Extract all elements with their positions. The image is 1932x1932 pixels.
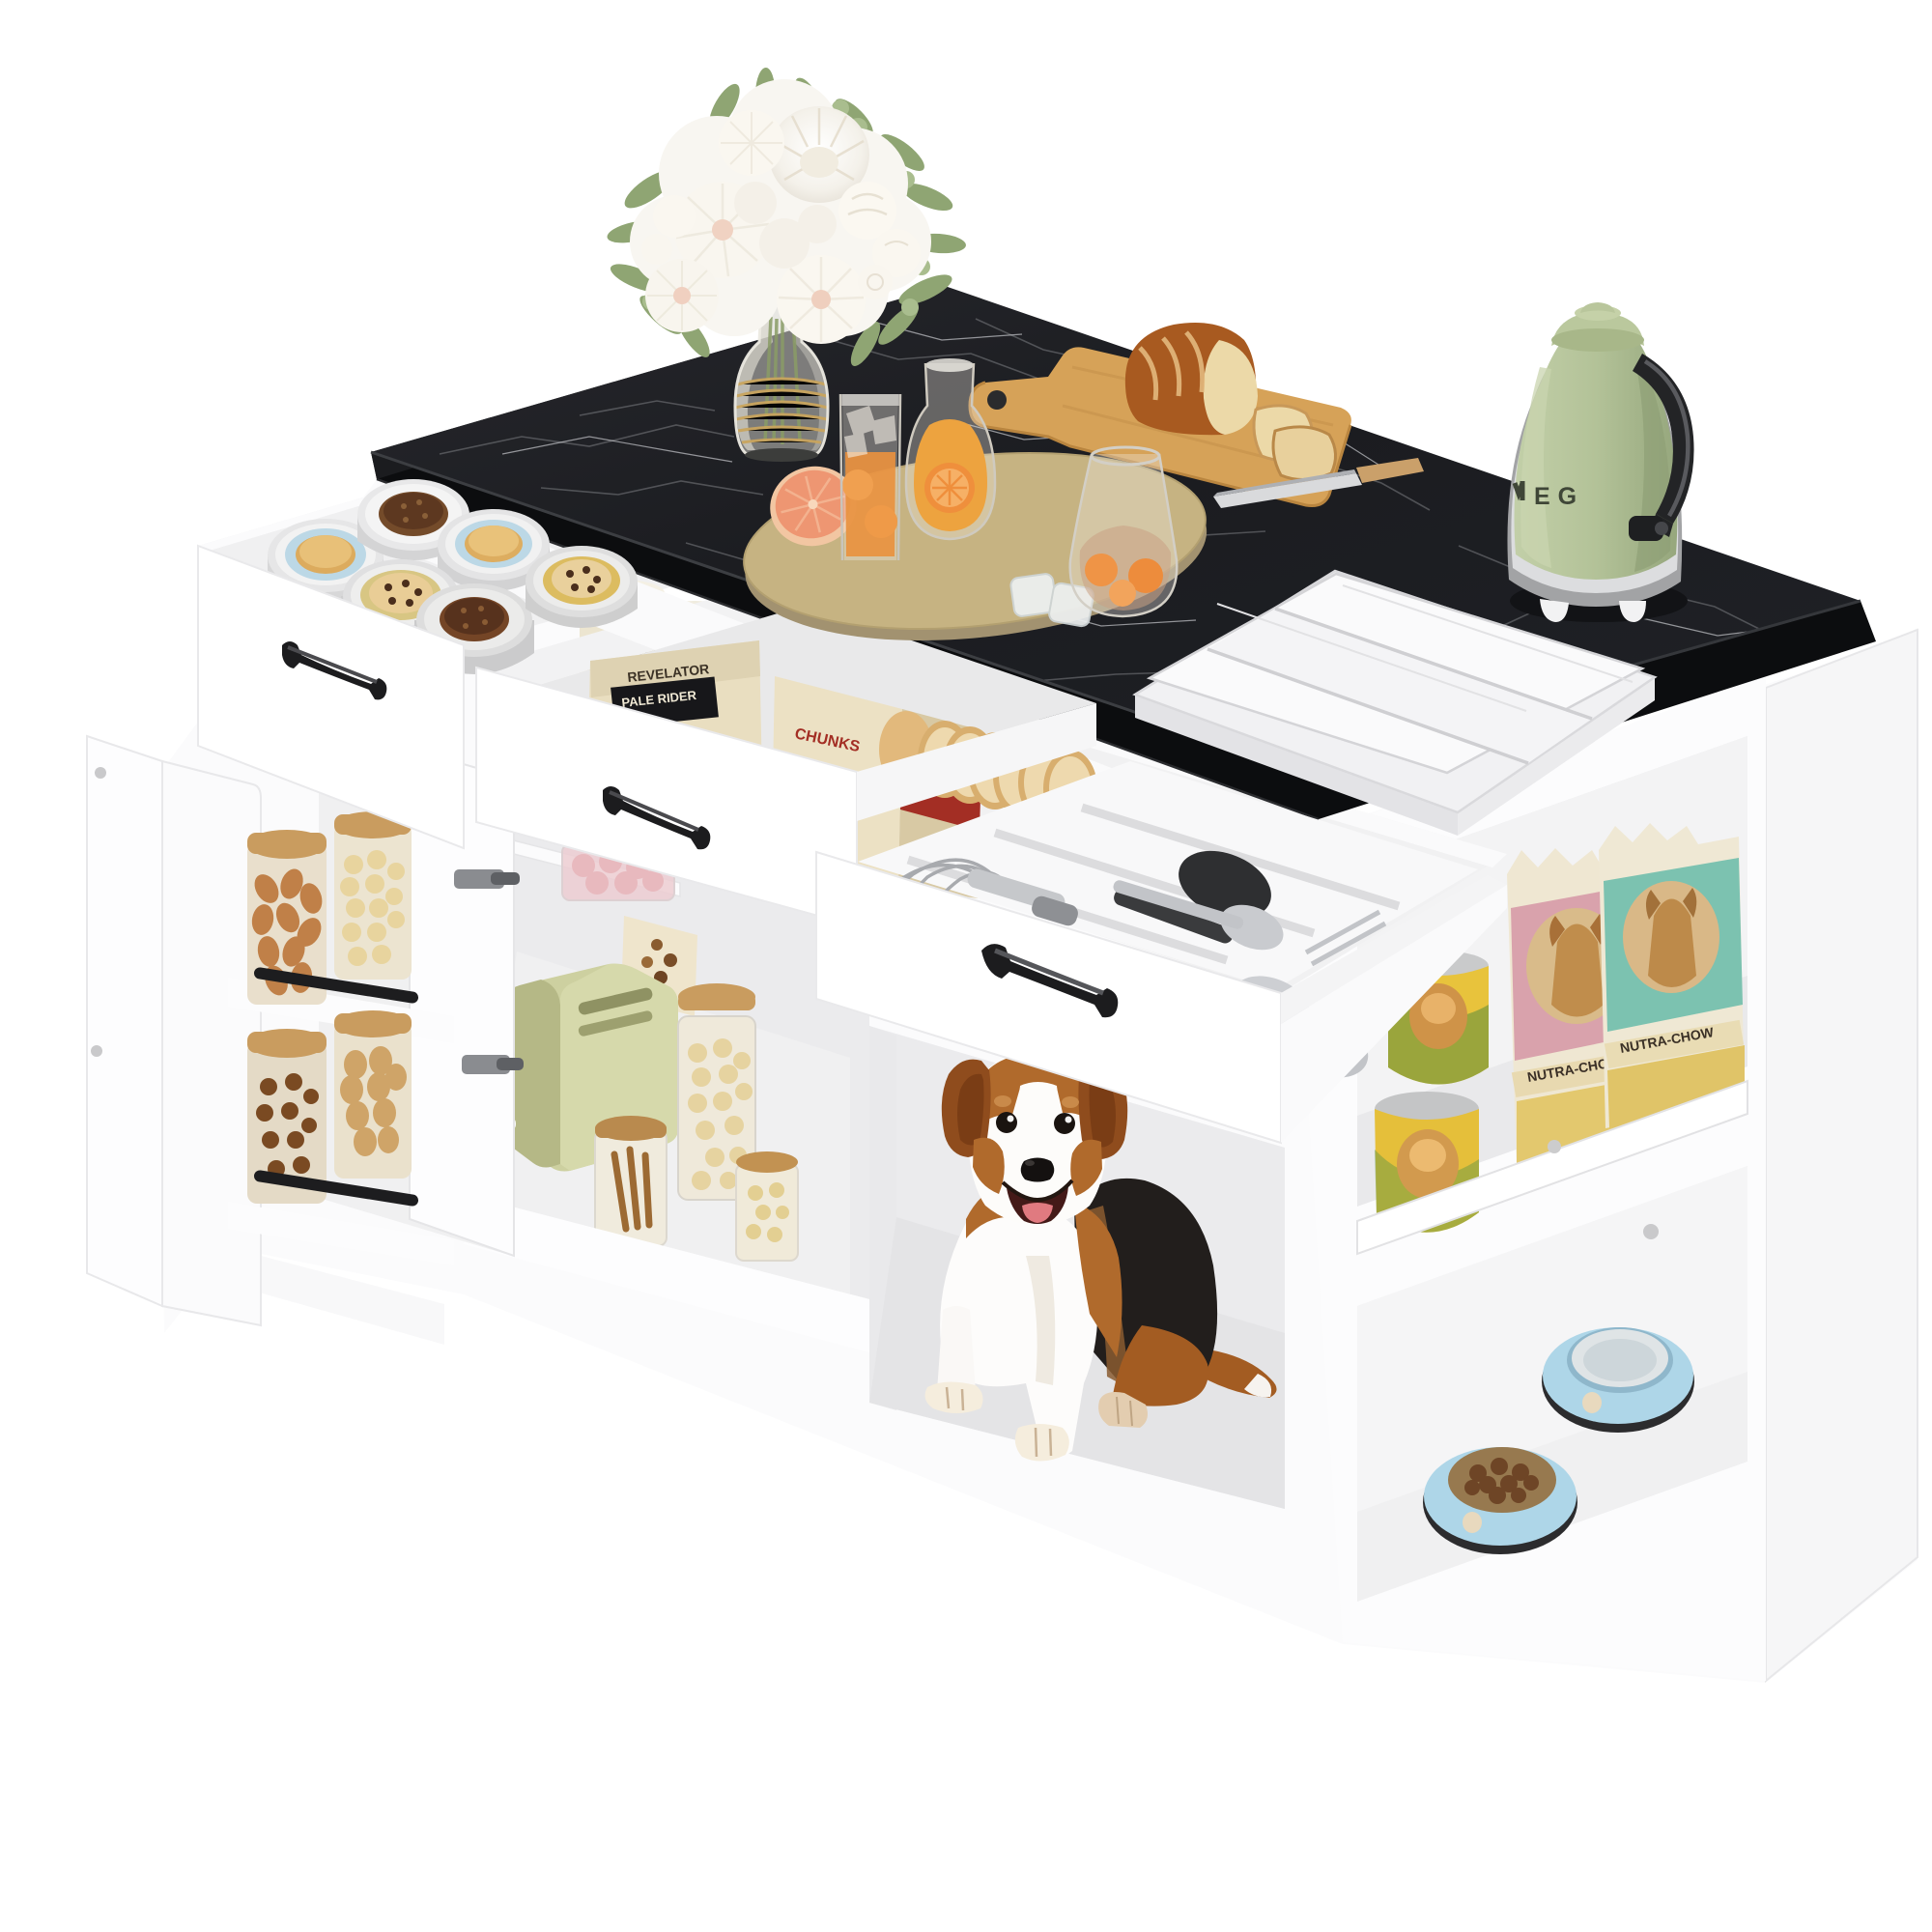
svg-text:EG: EG (1534, 483, 1584, 510)
